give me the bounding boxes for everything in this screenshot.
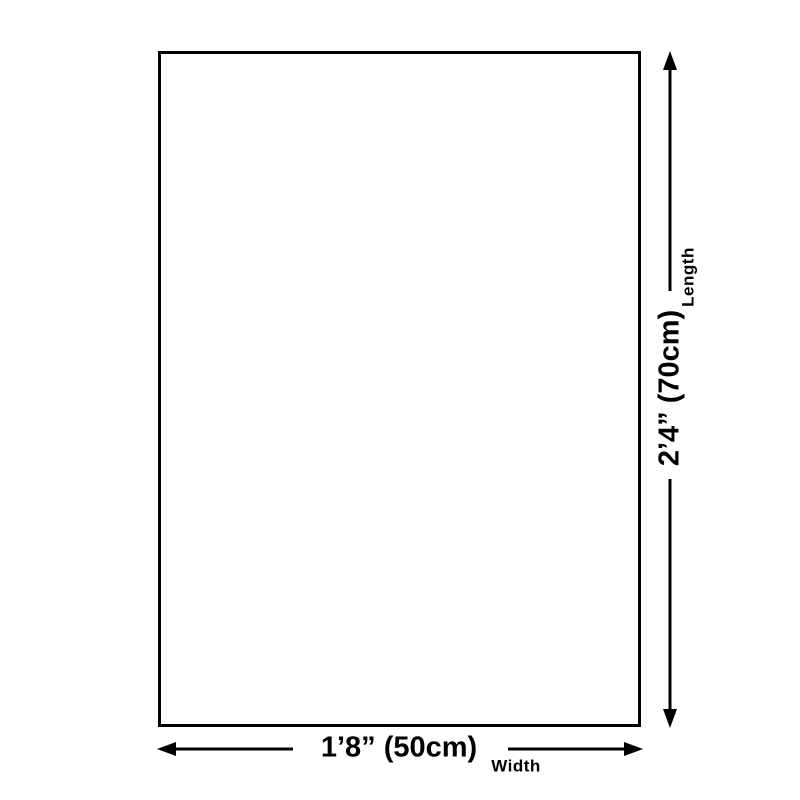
product-outline-rectangle xyxy=(158,51,641,727)
length-value: 2’4” (70cm) xyxy=(656,310,685,466)
length-label: Length xyxy=(680,247,697,307)
width-label: Width xyxy=(491,758,541,775)
arrow-left-icon xyxy=(157,742,176,756)
arrow-up-icon xyxy=(663,51,677,70)
arrow-right-icon xyxy=(624,742,643,756)
dimension-diagram: 2’4” (70cm) Length 1’8” (50cm) Width xyxy=(0,0,800,800)
width-value: 1’8” (50cm) xyxy=(321,734,477,763)
arrow-down-icon xyxy=(663,709,677,728)
